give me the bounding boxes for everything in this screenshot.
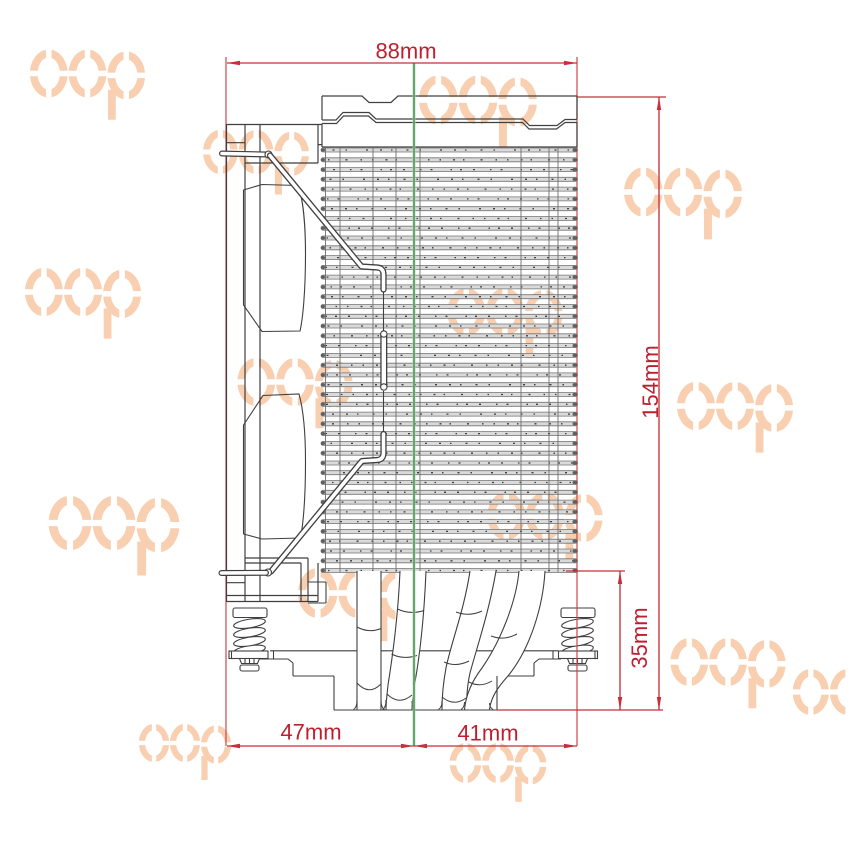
svg-text:154mm: 154mm	[638, 345, 663, 418]
svg-text:47mm: 47mm	[280, 720, 341, 745]
svg-text:35mm: 35mm	[627, 607, 652, 668]
svg-text:41mm: 41mm	[457, 721, 518, 746]
svg-text:88mm: 88mm	[375, 39, 436, 64]
